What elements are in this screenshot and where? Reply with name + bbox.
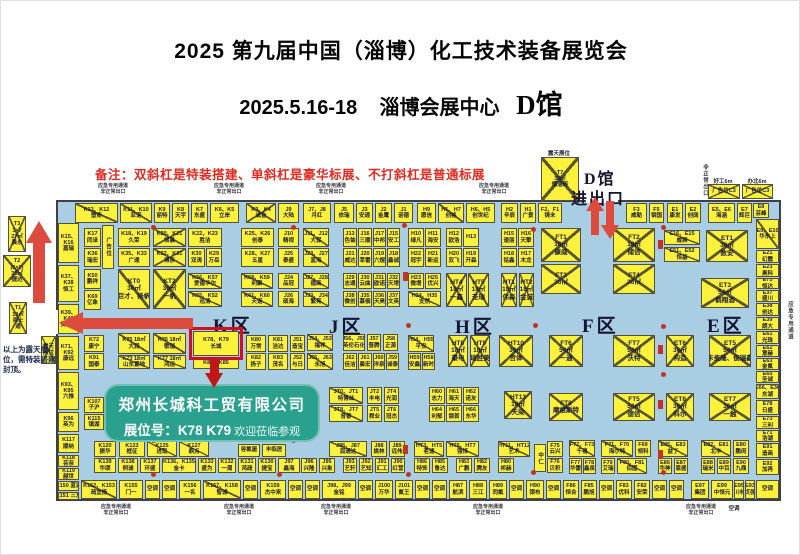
booth-J58: J58正源 xyxy=(383,334,398,351)
booth-K15、: K15、K16嘉瑞 xyxy=(58,223,79,263)
booth-J9: J9大陆 xyxy=(278,203,299,223)
booth-F86: F86恒合 xyxy=(563,480,579,499)
booth-FT1: FT118㎡康威 xyxy=(541,228,581,262)
booth-HT3、HT5: HT3、HT5茗速 xyxy=(414,441,444,457)
booth-ET7: ET736㎡一触 xyxy=(709,393,751,421)
booth-J16: J16三顺 xyxy=(358,228,372,247)
map-label: 应急专用通道 非正常出口 xyxy=(473,504,503,516)
booth-J32: J32天增 xyxy=(387,273,400,289)
booth-F69: F69领科 xyxy=(635,440,651,457)
map-label: 应急专用通道 非正常出口 xyxy=(479,183,509,195)
booth-K55、K52: K55、K52巡清 xyxy=(188,291,222,307)
booth-H88: H88三江 xyxy=(469,480,487,499)
booth-E5、E6: E5、E6海涵 xyxy=(708,203,735,223)
booth-J52: J52与日 xyxy=(290,353,305,370)
booth-H10: H10绿凡 xyxy=(408,228,424,247)
booth-E21: E21幻震 xyxy=(756,250,779,263)
booth-E8: E8芸峰 xyxy=(753,203,769,218)
booth-H34、H35: H34、H35支然 xyxy=(408,291,441,307)
booth-J20: J20莘雷 xyxy=(358,248,372,267)
booth-T1: T118㎡海士通 xyxy=(9,302,27,334)
booth-KT0: KT036㎡巨才、扬帆 xyxy=(118,269,150,309)
booth-J91: J91汇工 xyxy=(375,458,389,473)
booth-HT2: HT218㎡金诚 xyxy=(519,273,534,307)
event-date: 2025.5.16-18 xyxy=(239,97,357,119)
booth-H62: H62诺友 xyxy=(463,387,479,404)
booth-ET5: ET554㎡卡麦隆、俊瑞鑫 xyxy=(709,335,751,367)
zone-label-F区: F区 xyxy=(582,311,619,338)
booth-H17: H17木龙 xyxy=(518,248,534,267)
booth-ET1: ET136㎡数安 xyxy=(706,230,748,262)
booth-J36: J36天昊 xyxy=(373,291,386,307)
booth-空调: 空调 xyxy=(546,480,561,499)
booth-H90: H90银布 xyxy=(526,480,544,499)
booth-中仁: 中仁 xyxy=(534,444,546,472)
booth-K72: K72康宁 xyxy=(84,335,104,352)
booth-J21: J21威达 xyxy=(343,248,357,267)
booth-空调: 空调 xyxy=(669,480,684,499)
exhibitor-callout: 郑州长城科工贸有限公司 展位号：K78 K79 欢迎莅临参观 xyxy=(104,384,320,442)
welcome-text: 欢迎莅临参观 xyxy=(234,426,300,438)
booth-H60: H60志力 xyxy=(429,387,445,404)
zone-label-E区: E区 xyxy=(707,311,745,338)
pillar-dot xyxy=(661,470,666,475)
booth-H2: H2辛辰 xyxy=(501,203,518,223)
booth-HT8: HT818㎡豪电 xyxy=(448,335,468,367)
booth-H22: H22冠宇 xyxy=(408,248,424,267)
booth-K69: K69亿象 xyxy=(84,290,101,310)
booth-F5: F5钢国 xyxy=(649,203,664,223)
pillar-dot xyxy=(151,225,156,230)
legend-notice: 备注：双斜杠是特装搭建、单斜杠是豪华标展、不打斜杠是普通标展 xyxy=(95,164,485,183)
booth-E71: E71浩湖 xyxy=(756,430,779,442)
booth-J100: J100万华 xyxy=(375,480,393,499)
booth-K117: K117顺纳 xyxy=(58,434,79,453)
map-label: 以上为露天展位，需特装搭建封顶。 xyxy=(3,345,57,375)
booth-J86、J87: J86、J87润通达 xyxy=(329,441,367,457)
booth-ET8: ET836㎡科尔 xyxy=(666,393,694,421)
booth-H18: H18铭鑫 xyxy=(501,248,517,267)
booth-K107: K107子沪 xyxy=(84,397,104,413)
booth-E90: E90九鼎 xyxy=(733,458,749,474)
booth-FT7: FT754㎡沃特 xyxy=(613,335,655,367)
booth-J101: J101氟王 xyxy=(395,480,413,499)
booth-K91: K91国泰 xyxy=(84,353,104,370)
booth-F79: F79艾瑞 xyxy=(601,458,615,474)
booth-J31: J31欧诺 xyxy=(373,273,386,289)
pillar-dot xyxy=(533,323,538,328)
booth-K156: K156一名 xyxy=(179,480,201,499)
booth-HT10: HT1036㎡宫体 xyxy=(499,335,533,367)
booth-H6、H5: H6、H5创世纪 xyxy=(466,203,495,223)
zone-label-J区: J区 xyxy=(329,312,364,339)
booth-E75: E75恒达 xyxy=(756,278,779,289)
booth-K50: K50鹏祥 xyxy=(84,269,101,289)
booth-H85: H85鲁达 xyxy=(432,458,448,473)
booth-J57: J57晋腾 xyxy=(367,334,381,351)
booth-空调: 空调 xyxy=(415,480,430,499)
booth-空调: 空调 xyxy=(432,480,447,499)
pillar-dot xyxy=(406,472,411,477)
booth-K151 三友: K151 三友 xyxy=(58,492,79,500)
booth-JT4: JT4光润 xyxy=(384,387,399,404)
booth-H25: H25优兴 xyxy=(425,273,441,289)
booth-F3: F3威勒 xyxy=(626,203,647,223)
booth-K77 18㎡: K77 18㎡鸿运 xyxy=(153,355,186,369)
exhibition-floorplan: 2025 第九届中国（淄博）化工技术装备展览会 2025.5.16-18 淄博会… xyxy=(0,0,800,555)
booth-J95: J95兴象 xyxy=(319,458,335,473)
booth-K36: K36瑞宏 xyxy=(84,248,101,267)
booth-空调: 空调 xyxy=(145,480,160,499)
pillar-dot xyxy=(661,372,666,377)
pillar-bar xyxy=(403,445,408,454)
booth-J10: J10精视 xyxy=(278,228,299,247)
booth-K119: K119越世 xyxy=(58,468,79,480)
booth-J61: J61晨宏 xyxy=(358,353,372,370)
booth-F2、F1: F2、F1铸未 xyxy=(538,203,562,223)
pillar-bar xyxy=(403,272,408,281)
booth-HT6、HT7: HT6、HT7强恒 xyxy=(446,441,479,457)
booth-ET6: ET636㎡构造 xyxy=(666,335,694,367)
booth-K61、K60: K61、K60天诺 xyxy=(241,291,273,307)
booth-J26: J26硕海 xyxy=(278,291,299,307)
booth-E66、E36: E66、E36东湖 xyxy=(756,384,779,399)
booth-J33、J34: J33、J34繁亮 xyxy=(303,291,329,307)
booth-HT5: HT518㎡圣瑞 xyxy=(468,273,489,307)
booth-H20: H20双飞 xyxy=(446,248,462,267)
booth-E88: E88瑞米 xyxy=(701,458,715,474)
booth-E61: E61光珠 xyxy=(756,331,779,344)
booth-K29: K29万岳 xyxy=(206,248,222,267)
booth-J29: J29志通 xyxy=(343,273,357,289)
map-label: 应急专用通道 非正常出口 xyxy=(686,504,716,516)
booth-FT5: FT554㎡德信 xyxy=(613,393,655,421)
map-label: 非正常出口 xyxy=(701,164,709,197)
page-title: 2025 第九届中国（淄博）化工技术装备展览会 xyxy=(1,35,800,65)
booth-E97: E97集团 xyxy=(691,480,709,499)
booth-J51: J51造宝 xyxy=(290,335,305,352)
booth-K11、K10: K11、K10亚诺 xyxy=(120,203,152,223)
booth-E7: E7辉巨 xyxy=(737,203,752,223)
booth-空调: 空调 xyxy=(358,480,373,499)
booth-T3: T33×727㎡晨永 xyxy=(8,216,26,252)
booth-H64: H64利郁 xyxy=(429,405,445,422)
booth-K81: K81洁达 xyxy=(268,335,288,352)
booth-J1: J1诺德 xyxy=(394,203,413,223)
booth-K125: K125进取 xyxy=(147,441,177,457)
booth-KT2: KT236㎡一帆 xyxy=(153,269,186,309)
booth-E62: E62意赫 xyxy=(756,345,779,357)
booth-ET3: ET354㎡鹤翔酒 xyxy=(701,278,749,308)
booth-K155: K155门一 xyxy=(119,480,143,499)
map-label: 露天展位 xyxy=(548,149,570,157)
booth-K130: K130捷宝 xyxy=(258,458,276,473)
booth-空调: 空调 xyxy=(652,480,667,499)
booth-H80: H80邦赫 xyxy=(498,458,514,473)
booth-H23: H23微增 xyxy=(408,273,424,289)
booth-H11: H11海安 xyxy=(425,228,441,247)
booth-K8: K8天宇 xyxy=(172,203,189,223)
booth-E63: E63金氟 xyxy=(756,358,779,370)
booth-K30: K30双涛 xyxy=(188,248,205,267)
booth-E16、E15: E16、E15威狮 xyxy=(664,230,700,245)
booth-E2: E2创阔 xyxy=(685,203,701,223)
booth-J62: J62佳洁 xyxy=(343,353,357,370)
booth-K152、K153: K152、K153疏宜扬 xyxy=(81,480,117,499)
booth-广告位C3: 广告位C3 xyxy=(742,184,773,199)
booth-K115: K115镇湖 xyxy=(84,414,104,430)
booth-JT8、JT7: JT8、JT7育黎 xyxy=(329,405,363,422)
booth-J92: J92艺知 xyxy=(359,458,373,473)
booth-FT6: FT654㎡一通 xyxy=(549,335,583,367)
booth-F78: F78鑫泉 xyxy=(583,458,596,474)
booth-H1: H1广景 xyxy=(520,203,536,223)
booth-J98、J99: J98、J99金铭 xyxy=(322,480,356,499)
booth-E51、E52: E51、E52恒基 xyxy=(664,247,700,262)
booth-J13: J13色铀 xyxy=(343,228,357,247)
event-venue: 淄博会展中心 xyxy=(379,97,499,119)
pillar-dot xyxy=(291,225,296,230)
booth-空调: 空调 xyxy=(243,480,258,499)
booth-E23: E23奥科 xyxy=(756,264,779,277)
booth-K83: K83茂名 xyxy=(268,353,288,370)
booth-FT4: FT436㎡ xyxy=(613,264,655,294)
booth-H65: H65钢首 xyxy=(446,405,462,422)
exhibitor-company: 郑州长城科工贸有限公司 xyxy=(104,393,320,415)
booth-K25、K26: K25、K26创泰 xyxy=(241,228,274,247)
booth-空调: 空调 xyxy=(509,480,524,499)
booth-K133: K133盛为 xyxy=(198,458,216,473)
booth-K76 18㎡: K76 18㎡敬瑞 xyxy=(153,333,186,354)
booth-K82: K82扬子 xyxy=(246,353,266,370)
booth-空调: 空调 xyxy=(756,480,779,499)
booth-E1: E1康发 xyxy=(667,203,683,223)
booth-空调: 空调 xyxy=(599,480,614,499)
booth-F82: F82安荣 xyxy=(634,480,650,499)
pillar-bar xyxy=(658,400,663,409)
booth-J65、J63: J65、J63永旭 xyxy=(307,353,333,370)
booth-E78: E78日盛 xyxy=(756,400,779,415)
booth-K71、: K71、K92康远 xyxy=(58,336,79,370)
pillar-bar xyxy=(658,240,663,249)
booth-J60: J60洋泉 xyxy=(373,353,385,370)
booth-F72、F73: F72、F73千禧 xyxy=(569,440,595,457)
booth-K120: K120振华 xyxy=(94,441,116,457)
exhibitor-booth-numbers: K78 K79 xyxy=(178,423,231,438)
booth-K93、: K93、K95六推 xyxy=(58,372,79,410)
booth-J24: J24品冠 xyxy=(278,273,299,289)
booth-K35、K33: K35、K33广通 xyxy=(118,248,150,267)
map-label: 应急专用通道 非正常出口 xyxy=(98,183,128,195)
booth-J97: J97鑫海 xyxy=(278,458,300,473)
booth-K58、K59: K58、K59利聚 xyxy=(241,273,273,289)
booth-E87: E87恩盛 xyxy=(674,458,688,474)
booth-E39: E39朗大 xyxy=(756,317,779,330)
booth-K157、K158: K157、K158智诚 xyxy=(203,480,241,499)
booth-HT9: HT918㎡瑞胜美 xyxy=(470,335,490,367)
pillar-dot xyxy=(277,472,282,477)
pillar-dot xyxy=(406,323,411,328)
booth-K137: K137环盛 xyxy=(140,458,160,473)
booth-E9、E10: E9、E10华东上 xyxy=(756,219,779,249)
booth-K56、K57: K56、K57爱德华尔 xyxy=(188,273,222,289)
booth-J15: J15安工 xyxy=(387,228,400,247)
booth-H87: H87航滨 xyxy=(449,480,467,499)
map-label: 应急专用通道 xyxy=(786,301,794,340)
booth-J23、J27: J23、J27蓝海 xyxy=(303,248,329,267)
booth-E80: E80鹏闵 xyxy=(733,440,749,457)
booth-H61: H61海天 xyxy=(446,387,462,404)
booth-K32、K31: K32、K31博彦 xyxy=(153,248,186,267)
booth-H9: H9愿信 xyxy=(417,203,436,223)
booth-FT8: FT8摩根斯特 xyxy=(549,393,583,421)
booth-E92: E92加再 xyxy=(756,459,779,475)
booth-J25: J25泰盛 xyxy=(278,248,299,267)
booth-H59: H59安鑫 xyxy=(408,353,421,370)
booth-E91: E91造画 xyxy=(756,443,779,458)
booth-K20、K21: K20、K21恒晨 xyxy=(153,228,186,247)
booth-JT0、JT1: JT0、JT1特博丝 xyxy=(329,387,363,404)
booth-J88: J88姚林 xyxy=(371,441,387,457)
booth-E89: E89中百 xyxy=(717,458,731,474)
booth-广告位: 广告位 xyxy=(102,225,114,269)
booth-K17: K17同泽 xyxy=(84,228,101,247)
booth-H13: H13 xyxy=(463,228,479,247)
booth-J30: J30云曲 xyxy=(358,273,372,289)
map-label: 空调 xyxy=(728,504,739,512)
map-label: 好工6m xyxy=(714,177,733,185)
map-label: 应急专用通道 非正常出口 xyxy=(321,504,351,516)
booth-H15: H15速丽 xyxy=(501,228,517,247)
booth-JT5: JT5舜业 xyxy=(367,405,382,422)
booth-K138: K138例诚 xyxy=(118,458,138,473)
booth-空调: 空调 xyxy=(288,480,303,499)
pillar-dot xyxy=(661,324,666,329)
booth-F83: F83优科 xyxy=(616,480,632,499)
booth-丰临居: 丰临居 xyxy=(262,444,286,457)
booth-E82、E81: E82、E81北丰 xyxy=(701,440,731,457)
booth-H1、H7: H1、H7创格 xyxy=(438,203,464,223)
booth-K78、K79: K78、K79长城 xyxy=(193,331,239,356)
map-label: 应急专用通道 非正常出口 xyxy=(214,183,244,195)
booth-H54、H55: H54、H55平安 xyxy=(408,335,434,352)
booth-J37: J37文英 xyxy=(387,291,400,307)
booth-H83: H83广鹏 xyxy=(456,458,472,473)
booth-J38: J38微创 xyxy=(343,291,357,307)
booth-H19: H19开森 xyxy=(463,248,479,267)
booth-J5: J5依瑞 xyxy=(334,203,354,223)
booth-K136、K135: K136、K135金卡 xyxy=(162,458,196,473)
booth-K159: K159杰中来 xyxy=(260,480,286,499)
pillar-dot xyxy=(531,227,536,232)
page-subtitle: 2025.5.16-18 淄博会展中心 D馆 xyxy=(1,83,800,122)
booth-FT3: FT336㎡ xyxy=(541,264,581,294)
booth-K131: K131鸿疏 xyxy=(238,458,256,473)
booth-J96: J96兴隆 xyxy=(301,458,317,473)
booth-J17: J17中邦 xyxy=(373,228,386,247)
booth-K37、: K37、K38恒工 xyxy=(58,265,79,302)
booth-T2: T2(5×7)35㎡捷达 xyxy=(3,255,31,287)
booth-K18、K19: K18、K19久荣 xyxy=(118,228,150,247)
booth-K118: K118芸奈 xyxy=(58,455,79,467)
booth-HT4: HT418㎡一鑫 xyxy=(446,273,467,307)
booth-H66: H66东华 xyxy=(463,405,479,422)
booth-F75: F75云兴 xyxy=(547,441,563,457)
booth-E93: E93贞强 xyxy=(745,480,755,499)
booth-J3: J3安通 xyxy=(356,203,373,223)
booth-FT2: FT218㎡储信 xyxy=(613,228,655,262)
booth-J35: J35慕俄 xyxy=(358,291,372,307)
booth-K132: K132一周 xyxy=(218,458,236,473)
zone-label-H区: H区 xyxy=(455,312,495,339)
booth-K9: K9丽特 xyxy=(154,203,170,223)
booth-H89: H89同氟 xyxy=(489,480,507,499)
booth-J19: J19六煜 xyxy=(373,248,386,267)
pillar-dot xyxy=(531,470,536,475)
booth-F76: F76贝积 xyxy=(547,458,563,473)
pillar-bar xyxy=(658,345,663,354)
booth-H12: H12欧浩 xyxy=(446,228,462,247)
exhibitor-booth-line: 展位号：K78 K79 欢迎莅临参观 xyxy=(104,419,320,439)
booth-容氟屋: 容氟屋 xyxy=(238,444,260,457)
booth-E73: E73三利 xyxy=(756,416,779,429)
map-label: 应急专用通道 非正常出口 xyxy=(224,504,254,516)
booth-J59: J59诚泰 xyxy=(386,353,399,370)
booth-空调: 空调 xyxy=(162,480,177,499)
hall-name: D馆 xyxy=(516,90,563,120)
booth-K28、K27: K28、K27五星 xyxy=(241,248,274,267)
booth-J93: J93艺轩 xyxy=(343,458,357,473)
pillar-dot xyxy=(402,223,407,228)
map-label: 应急专用通道 非正常出口 xyxy=(101,504,131,516)
booth-K96: K96英为 xyxy=(58,412,79,432)
pillar-dot xyxy=(151,472,156,477)
booth-HT13: HT1318㎡天染 xyxy=(504,391,532,419)
booth-J90: J90红营 xyxy=(391,458,405,473)
booth-K127: K127鼎点 xyxy=(179,441,209,457)
booth-广告位C3: 广告位C3 xyxy=(708,184,740,199)
booth-J11、J12: J11、J12大保 xyxy=(303,228,329,247)
booth-HT1: HT118㎡伟森 xyxy=(501,273,517,307)
booth-H58: H58新时 xyxy=(422,353,435,370)
booth-F71、F70: F71、F70海尔特 xyxy=(601,440,633,457)
booth-E95: E95川丰 xyxy=(734,480,744,499)
booth-K73 18㎡: K73 18㎡山东置地 xyxy=(118,355,150,369)
booth-K7: K7东盛 xyxy=(191,203,208,223)
booth-E37: E37盛川 xyxy=(756,290,779,302)
booth-F85: F85鹏旭 xyxy=(581,480,597,499)
booth-J27、J28: J27、J28德高 xyxy=(303,273,329,289)
booth-J18: J18鑫诚 xyxy=(387,248,400,267)
booth-F80、F81: F80、F81佰图 xyxy=(617,458,647,474)
booth-E38: E38创达 xyxy=(756,303,779,316)
booth-空调: 空调 xyxy=(305,480,320,499)
booth-HT11、HT12: HT11、HT12艺术 xyxy=(498,441,530,457)
booth-K6、K5: K6、K5立岸 xyxy=(210,203,239,223)
booth-J2: J2金鹰 xyxy=(375,203,392,223)
booth-K150 蓝湖: K150 蓝湖 xyxy=(58,481,79,491)
booth-E99: E99中领元 xyxy=(711,480,733,499)
map-label: 应急专用通道 非正常出口 xyxy=(316,183,346,195)
pillar-bar xyxy=(658,450,663,459)
booth-H21: H21新运 xyxy=(425,248,441,267)
booth-H82: H82腾友 xyxy=(474,458,490,473)
booth-K22、K23: K22、K23胜洁 xyxy=(188,228,222,247)
booth-K139: K139华颂 xyxy=(94,458,116,473)
pillar-dot xyxy=(661,225,666,230)
booth-J7、J8: J7、J8月红 xyxy=(303,203,331,223)
booth-F77: F77华雷 xyxy=(569,458,582,474)
